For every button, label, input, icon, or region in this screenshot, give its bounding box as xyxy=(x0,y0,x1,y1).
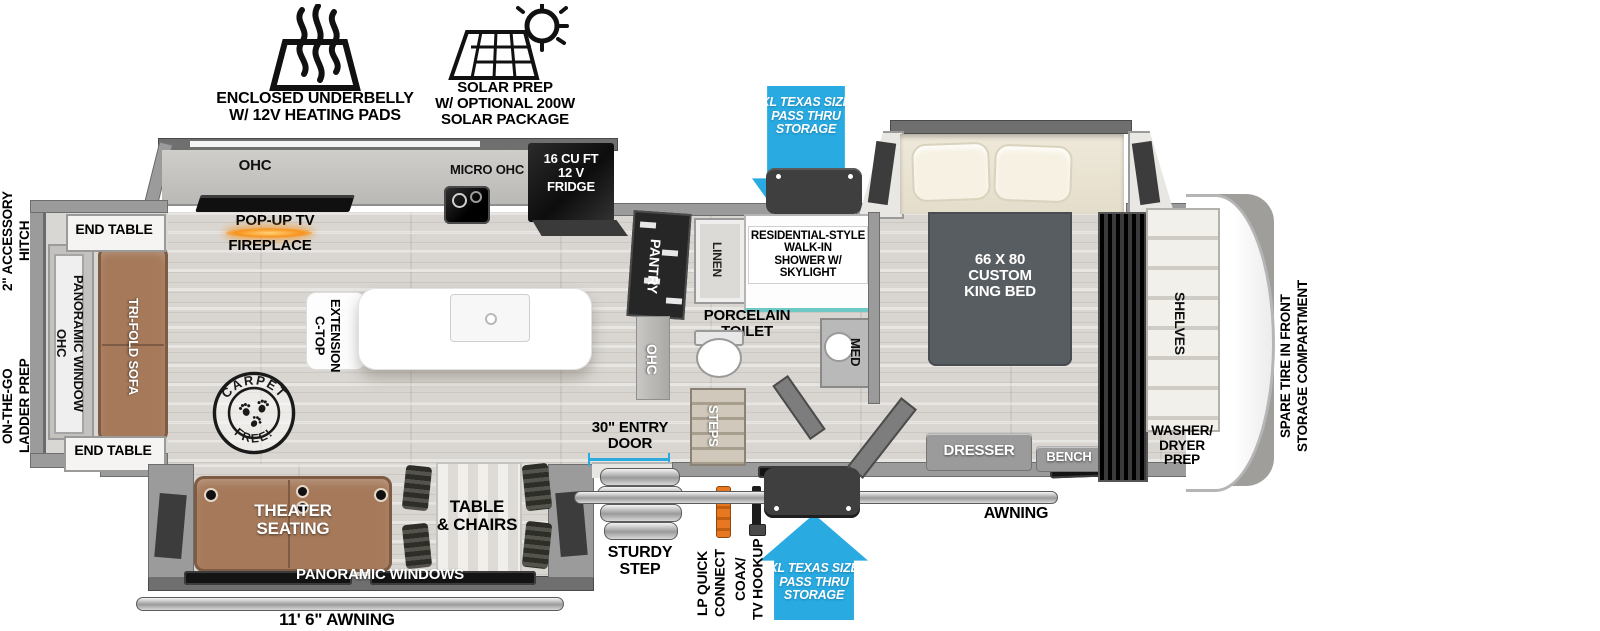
kitchen-slide-highlight xyxy=(190,141,480,147)
shower-label: RESIDENTIAL-STYLE WALK-IN SHOWER W/ SKYL… xyxy=(748,226,868,284)
cooktop xyxy=(444,186,490,224)
fridge-base xyxy=(532,220,628,236)
underbelly-label: ENCLOSED UNDERBELLY W/ 12V HEATING PADS xyxy=(205,90,425,125)
spare-tire-label: SPARE TIRE IN FRONT STORAGE COMPARTMENT xyxy=(1278,252,1312,480)
linen-label: LINEN xyxy=(710,232,723,288)
front-pass-thru-storage-bottom xyxy=(764,468,860,518)
theater-cupholder xyxy=(296,485,309,498)
rear-awning-bar xyxy=(136,597,564,611)
med-label: MED xyxy=(848,330,862,374)
lp-quick-connect-label: LP QUICK CONNECT xyxy=(694,538,729,628)
rear-awning-label: 11' 6" AWNING xyxy=(252,611,422,629)
entry-step xyxy=(604,522,678,540)
solar-prep-icon xyxy=(445,4,570,84)
pantry-handle xyxy=(666,297,682,304)
bed-pillow xyxy=(911,142,991,203)
rear-slide-top-wall xyxy=(30,200,168,213)
kitchen-ohc-label: OHC xyxy=(225,158,285,174)
pop-up-tv xyxy=(195,195,355,212)
storage-latch xyxy=(846,506,851,511)
toilet-bowl xyxy=(696,338,742,378)
bath-bedroom-wall xyxy=(868,212,880,404)
theater-seating-label: THEATER SEATING xyxy=(208,502,378,539)
storage-latch xyxy=(848,174,853,179)
cooktop-burner xyxy=(470,191,482,203)
pass-thru-arrow-bottom: XL TEXAS SIZE PASS THRU STORAGE xyxy=(760,514,868,620)
entry-door-dimension-line xyxy=(588,458,670,461)
ohc-panoramic-window-label: OHC PANORAMIC WINDOW xyxy=(52,248,86,438)
end-table-top-label: END TABLE xyxy=(66,222,162,237)
island-faucet xyxy=(485,313,497,325)
storage-latch xyxy=(774,506,779,511)
cooktop-burner xyxy=(452,193,467,208)
ctop-extension-label: C-TOP EXTENSION xyxy=(312,286,343,386)
storage-latch xyxy=(776,174,781,179)
ladder-prep-label: ON-THE-GO LADDER PREP xyxy=(0,324,34,488)
shelves-label: SHELVES xyxy=(1172,268,1187,378)
king-bed-label: 66 X 80 CUSTOM KING BED xyxy=(928,252,1072,301)
door-slide-left-window xyxy=(154,493,186,559)
bath-steps-label: STEPS xyxy=(706,396,720,456)
coax-tv-hookup-label: COAX/ TV HOOKUP xyxy=(732,530,767,628)
end-table-bottom-label: END TABLE xyxy=(64,443,162,458)
pop-up-tv-label: POP-UP TV xyxy=(200,213,350,229)
panoramic-windows-label: PANORAMIC WINDOWS xyxy=(270,567,490,583)
floorplan-canvas: ENCLOSED UNDERBELLY W/ 12V HEATING PADS … xyxy=(0,0,1600,631)
table-chairs-label: TABLE & CHAIRS xyxy=(420,498,534,535)
fireplace-label: FIREPLACE xyxy=(222,238,318,254)
theater-cupholder xyxy=(204,488,218,502)
bed-slide-outer-wall xyxy=(890,120,1132,134)
heating-pads-icon xyxy=(255,4,375,92)
accessory-hitch-label: 2" ACCESSORY HITCH xyxy=(0,188,34,294)
dresser-label: DRESSER xyxy=(926,443,1032,459)
sturdy-step-label: STURDY STEP xyxy=(592,544,688,579)
entry-step xyxy=(600,468,680,486)
pass-thru-top-label: XL TEXAS SIZE PASS THRU STORAGE xyxy=(752,96,860,137)
tri-fold-sofa-label: TRI-FOLD SOFA xyxy=(126,292,140,402)
washer-dryer-label: WASHER/ DRYER PREP xyxy=(1138,424,1226,468)
micro-ohc-label: MICRO OHC xyxy=(432,163,542,177)
pantry-handle xyxy=(662,249,678,256)
entry-step xyxy=(600,504,682,522)
bed-pillow xyxy=(993,144,1073,204)
side-awning-label: AWNING xyxy=(956,505,1076,522)
theater-cupholder xyxy=(374,488,388,502)
bench-label: BENCH xyxy=(1036,450,1102,464)
pass-thru-bottom-label: XL TEXAS SIZE PASS THRU STORAGE xyxy=(760,562,868,603)
entry-door-label: 30" ENTRY DOOR xyxy=(578,420,682,452)
bath-ohc-label: OHC xyxy=(644,328,659,390)
carpet-free-stamp: CARPET FREE! xyxy=(211,370,297,456)
solar-label: SOLAR PREP W/ OPTIONAL 200W SOLAR PACKAG… xyxy=(415,80,595,129)
dimension-tick xyxy=(588,453,590,466)
fridge-label: 16 CU FT 12 V FRIDGE xyxy=(528,152,614,194)
